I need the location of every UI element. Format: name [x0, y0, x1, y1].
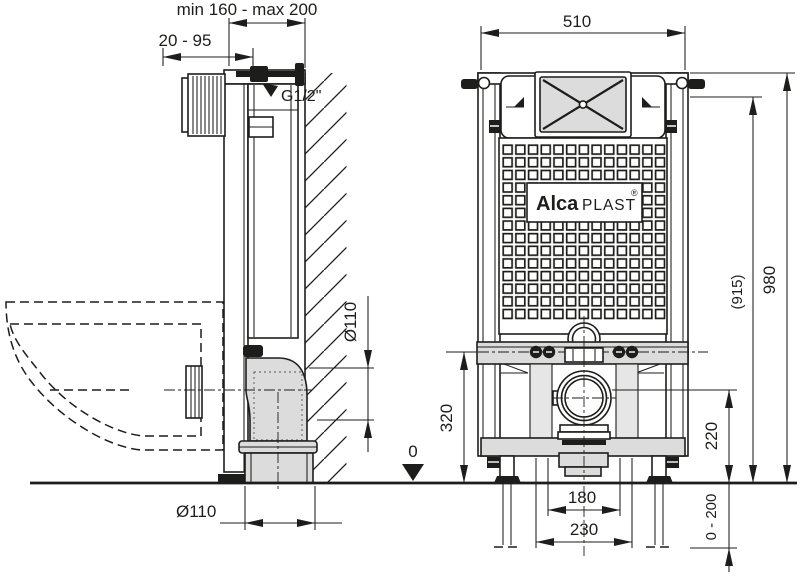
dim-leg-adjust-label: 0 - 200	[703, 494, 720, 541]
floor-datum-marker: 0	[402, 442, 424, 481]
dim-spacing-outer-label: 230	[570, 520, 598, 539]
drain-assembly	[553, 348, 611, 476]
access-window	[535, 72, 631, 137]
dim-height-alt-label: (915)	[729, 274, 746, 309]
logo-registered-mark: ®	[631, 188, 638, 198]
cistern-grid: Alca PLAST ®	[499, 138, 667, 334]
outlet-dia-vertical-label: Ø110	[341, 302, 360, 342]
dim-outlet-height-alt-label: 220	[702, 422, 721, 450]
outlet-dia-horizontal-label: Ø110	[176, 502, 216, 521]
side-view: min 160 - max 200 20 - 95 G1/2" Ø110	[6, 0, 424, 530]
wc-inlet-spigot	[186, 366, 202, 418]
front-view: Alca PLAST ®	[437, 12, 795, 572]
dim-outlet-dia-horizontal: Ø110	[176, 486, 342, 530]
corrugated-inlet	[182, 74, 225, 136]
dim-depth-range-label: min 160 - max 200	[177, 0, 318, 19]
dim-outlet-height-320: 320	[437, 352, 477, 483]
logo-text-light: PLAST	[582, 197, 636, 214]
dim-leg-adjust: 0 - 200	[690, 483, 737, 572]
dim-outlet-height-label: 320	[437, 404, 456, 432]
installation-frame-drawing: min 160 - max 200 20 - 95 G1/2" Ø110	[0, 0, 800, 587]
dim-height-915: (915)	[690, 97, 762, 483]
technical-drawing-canvas: min 160 - max 200 20 - 95 G1/2" Ø110	[0, 0, 800, 587]
wall-hatch	[305, 73, 347, 483]
logo-text-bold: Alca	[536, 193, 579, 215]
logo-plate: Alca PLAST ®	[527, 183, 642, 222]
dim-inlet-range: 20 - 95	[159, 31, 253, 66]
dim-width-510: 510	[481, 12, 685, 70]
dim-spacing-inner-label: 180	[568, 488, 596, 507]
dim-height-label: 980	[760, 266, 779, 294]
dim-inlet-range-label: 20 - 95	[159, 31, 212, 50]
water-connection-label: G1/2"	[281, 88, 321, 105]
dim-width-label: 510	[563, 12, 591, 31]
floor-datum-label: 0	[408, 442, 417, 461]
